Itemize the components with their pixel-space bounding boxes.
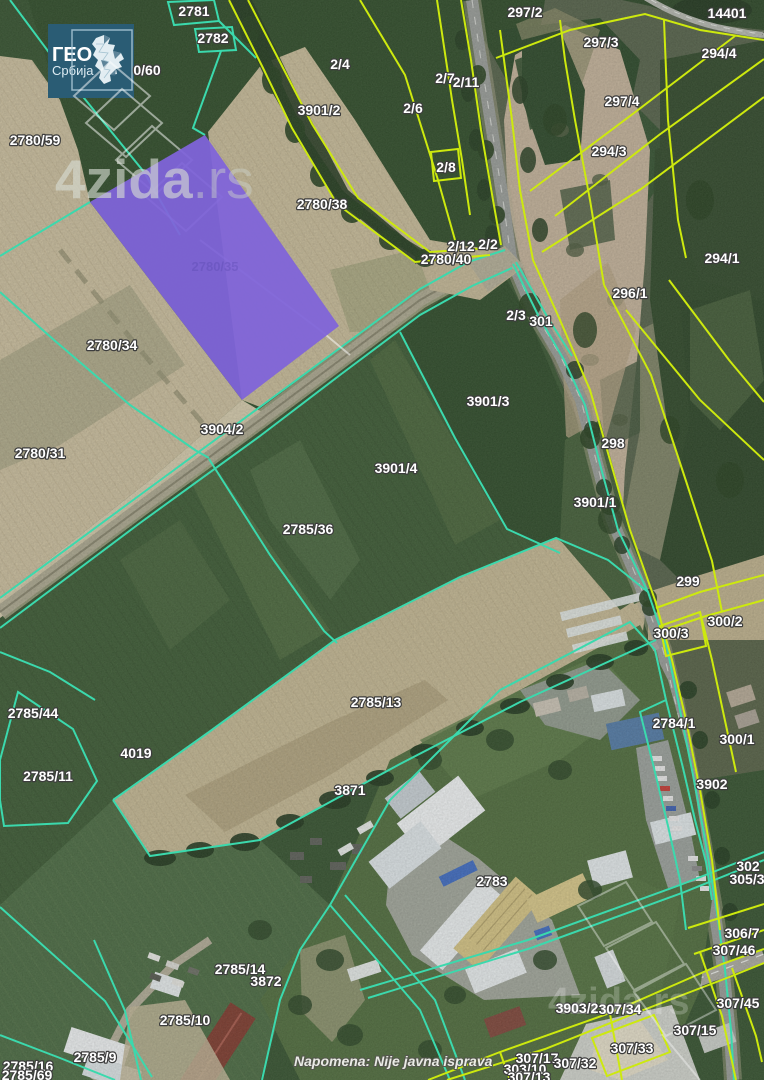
svg-text:297/4: 297/4	[604, 93, 639, 109]
svg-text:307/13: 307/13	[508, 1069, 551, 1080]
svg-text:2/6: 2/6	[403, 100, 423, 116]
svg-text:300/2: 300/2	[707, 613, 742, 629]
svg-text:4zida.rs: 4zida.rs	[55, 148, 254, 210]
svg-text:2785/13: 2785/13	[351, 694, 402, 710]
svg-text:297/2: 297/2	[507, 4, 542, 20]
svg-text:300/1: 300/1	[719, 731, 754, 747]
svg-text:2/2: 2/2	[478, 236, 498, 252]
svg-text:307/15: 307/15	[674, 1022, 717, 1038]
svg-text:306/7: 306/7	[724, 925, 759, 941]
svg-text:2780/34: 2780/34	[87, 337, 138, 353]
svg-text:301: 301	[529, 313, 553, 329]
svg-text:2780/38: 2780/38	[297, 196, 348, 212]
svg-text:4zida.rs: 4zida.rs	[548, 981, 690, 1023]
svg-text:307/32: 307/32	[554, 1055, 597, 1071]
svg-text:307/33: 307/33	[611, 1040, 654, 1056]
svg-text:2785/36: 2785/36	[283, 521, 334, 537]
svg-text:2/3: 2/3	[506, 307, 526, 323]
svg-text:14401: 14401	[708, 5, 747, 21]
svg-text:297/3: 297/3	[583, 34, 618, 50]
svg-text:Србија: Србија	[52, 63, 94, 78]
svg-text:300/3: 300/3	[653, 625, 688, 641]
svg-text:2785/69: 2785/69	[2, 1067, 53, 1080]
svg-text:2785/11: 2785/11	[23, 768, 73, 784]
svg-text:2783: 2783	[476, 873, 507, 889]
svg-text:307/45: 307/45	[717, 995, 760, 1011]
svg-text:4019: 4019	[120, 745, 151, 761]
svg-text:296/1: 296/1	[612, 285, 647, 301]
svg-text:298: 298	[601, 435, 625, 451]
svg-text:3902: 3902	[696, 776, 727, 792]
svg-text:299: 299	[676, 573, 700, 589]
svg-text:3901/2: 3901/2	[298, 102, 341, 118]
svg-text:2785/44: 2785/44	[8, 705, 59, 721]
svg-text:294/4: 294/4	[701, 45, 736, 61]
svg-text:307/46: 307/46	[713, 942, 756, 958]
svg-text:2785/9: 2785/9	[74, 1049, 117, 1065]
svg-text:2780/35: 2780/35	[192, 259, 239, 274]
svg-text:0/60: 0/60	[133, 62, 160, 78]
svg-text:2/4: 2/4	[330, 56, 350, 72]
svg-text:2780/40: 2780/40	[421, 251, 472, 267]
svg-text:2780/31: 2780/31	[15, 445, 66, 461]
svg-text:3901/4: 3901/4	[375, 460, 418, 476]
svg-text:3872: 3872	[250, 973, 281, 989]
svg-text:3904/2: 3904/2	[201, 421, 244, 437]
svg-text:Napomena: Nije javna isprava: Napomena: Nije javna isprava	[294, 1053, 493, 1069]
svg-text:2/11: 2/11	[453, 74, 480, 90]
svg-text:3901/3: 3901/3	[467, 393, 510, 409]
svg-text:2782: 2782	[197, 30, 228, 46]
svg-text:2780/59: 2780/59	[10, 132, 61, 148]
svg-text:294/1: 294/1	[704, 250, 739, 266]
svg-text:2781: 2781	[178, 3, 209, 19]
svg-text:2785/10: 2785/10	[160, 1012, 211, 1028]
svg-text:305/3: 305/3	[729, 871, 764, 887]
svg-text:3871: 3871	[334, 782, 365, 798]
svg-text:294/3: 294/3	[591, 143, 626, 159]
svg-text:2/8: 2/8	[436, 159, 456, 175]
svg-text:2784/1: 2784/1	[653, 715, 696, 731]
svg-text:3901/1: 3901/1	[574, 494, 617, 510]
